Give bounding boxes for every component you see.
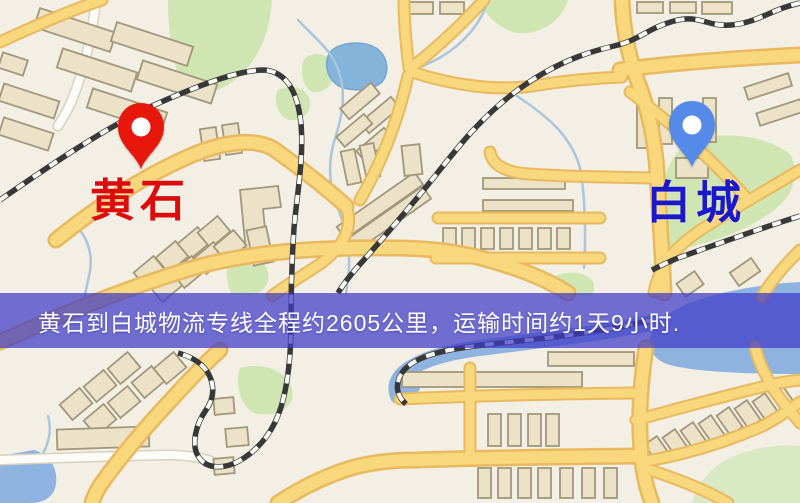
origin-pin[interactable]	[117, 101, 165, 171]
route-banner: 黄石到白城物流专线全程约2605公里，运输时间约1天9小时.	[0, 293, 800, 348]
map-canvas[interactable]	[0, 0, 800, 503]
route-banner-text: 黄石到白城物流专线全程约2605公里，运输时间约1天9小时.	[38, 304, 680, 338]
destination-pin[interactable]	[668, 99, 716, 169]
logistics-map-screenshot: 黄石到白城物流专线全程约2605公里，运输时间约1天9小时. 黄石 白城	[0, 0, 800, 503]
origin-label: 黄石	[90, 178, 190, 223]
destination-pin-icon	[668, 99, 716, 169]
destination-label: 白城	[646, 180, 746, 225]
origin-pin-icon	[117, 101, 165, 171]
